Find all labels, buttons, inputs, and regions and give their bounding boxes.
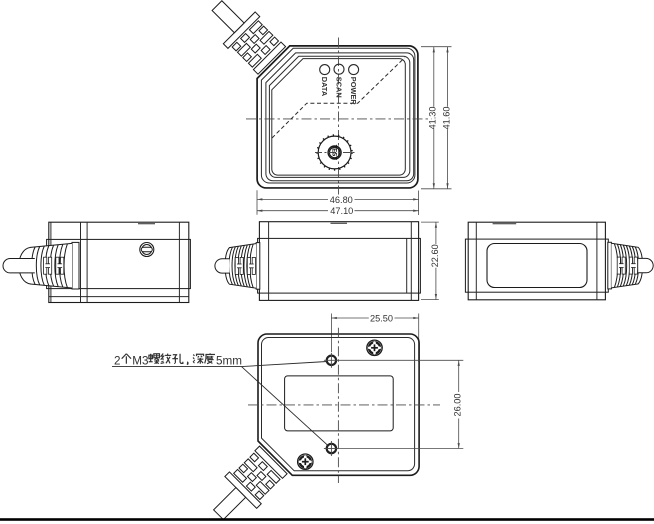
- svg-text:TEST: TEST: [330, 145, 336, 161]
- svg-text:41.30: 41.30: [428, 107, 438, 130]
- svg-text:26.00: 26.00: [452, 394, 462, 417]
- svg-text:SCAN: SCAN: [334, 77, 343, 98]
- svg-text:46.80: 46.80: [330, 195, 353, 205]
- svg-text:22.60: 22.60: [430, 244, 440, 267]
- svg-text:POWER: POWER: [349, 77, 358, 106]
- svg-text:5mm: 5mm: [216, 354, 242, 367]
- svg-text:25.50: 25.50: [370, 313, 393, 323]
- svg-text:M3: M3: [132, 354, 148, 367]
- svg-text:41.60: 41.60: [441, 107, 451, 130]
- svg-text:2: 2: [114, 354, 121, 367]
- svg-text:DATA: DATA: [320, 77, 329, 97]
- svg-text:47.10: 47.10: [330, 206, 353, 216]
